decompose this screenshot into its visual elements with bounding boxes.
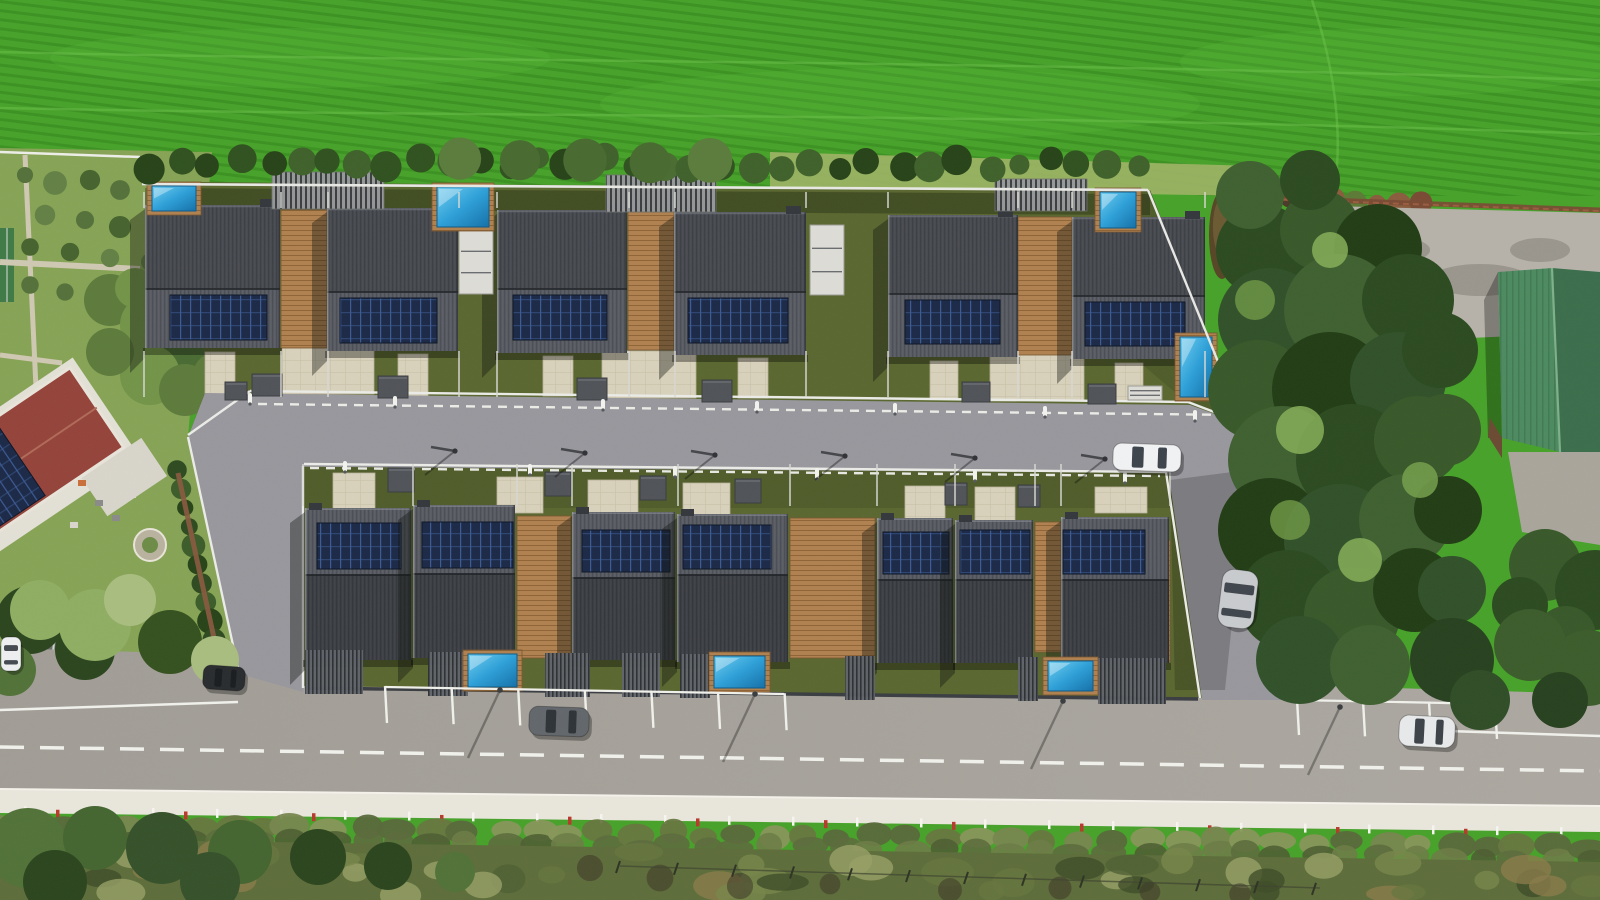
aerial-photo-stage [0,0,1600,900]
grain-overlay [0,0,1600,900]
aerial-render-canvas [0,0,1600,900]
